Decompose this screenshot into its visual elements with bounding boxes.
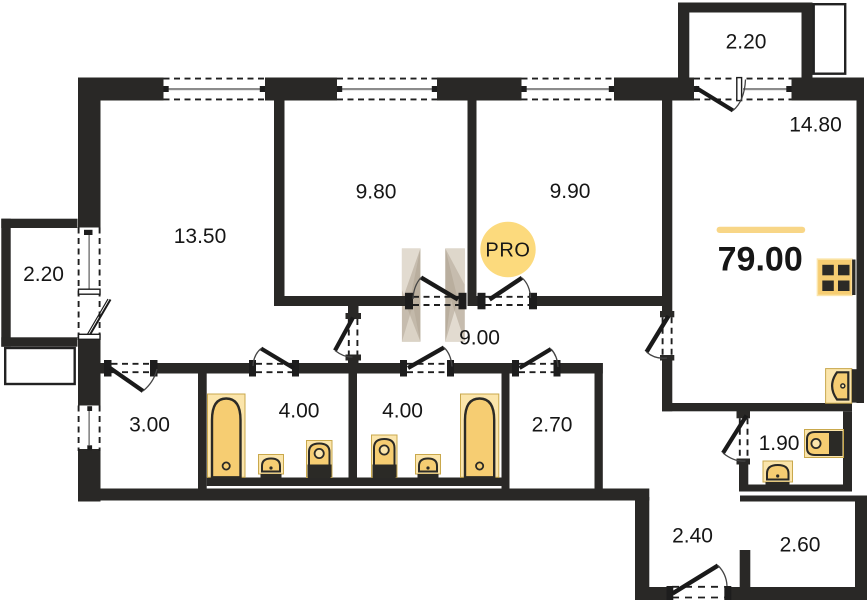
svg-text:2.40: 2.40 — [672, 524, 713, 547]
svg-text:PRO: PRO — [485, 240, 530, 262]
svg-text:9.80: 9.80 — [356, 180, 397, 203]
svg-text:2.70: 2.70 — [532, 413, 573, 436]
svg-text:79.00: 79.00 — [718, 240, 803, 278]
svg-text:14.80: 14.80 — [789, 113, 842, 136]
svg-text:3.00: 3.00 — [129, 413, 170, 436]
svg-text:2.20: 2.20 — [726, 30, 767, 53]
svg-text:13.50: 13.50 — [174, 225, 227, 248]
svg-text:9.00: 9.00 — [459, 326, 500, 349]
svg-text:2.60: 2.60 — [780, 533, 821, 556]
svg-text:4.00: 4.00 — [279, 399, 320, 422]
svg-text:4.00: 4.00 — [382, 399, 423, 422]
svg-text:1.90: 1.90 — [759, 432, 800, 455]
svg-text:9.90: 9.90 — [550, 180, 591, 203]
svg-text:2.20: 2.20 — [23, 263, 64, 286]
